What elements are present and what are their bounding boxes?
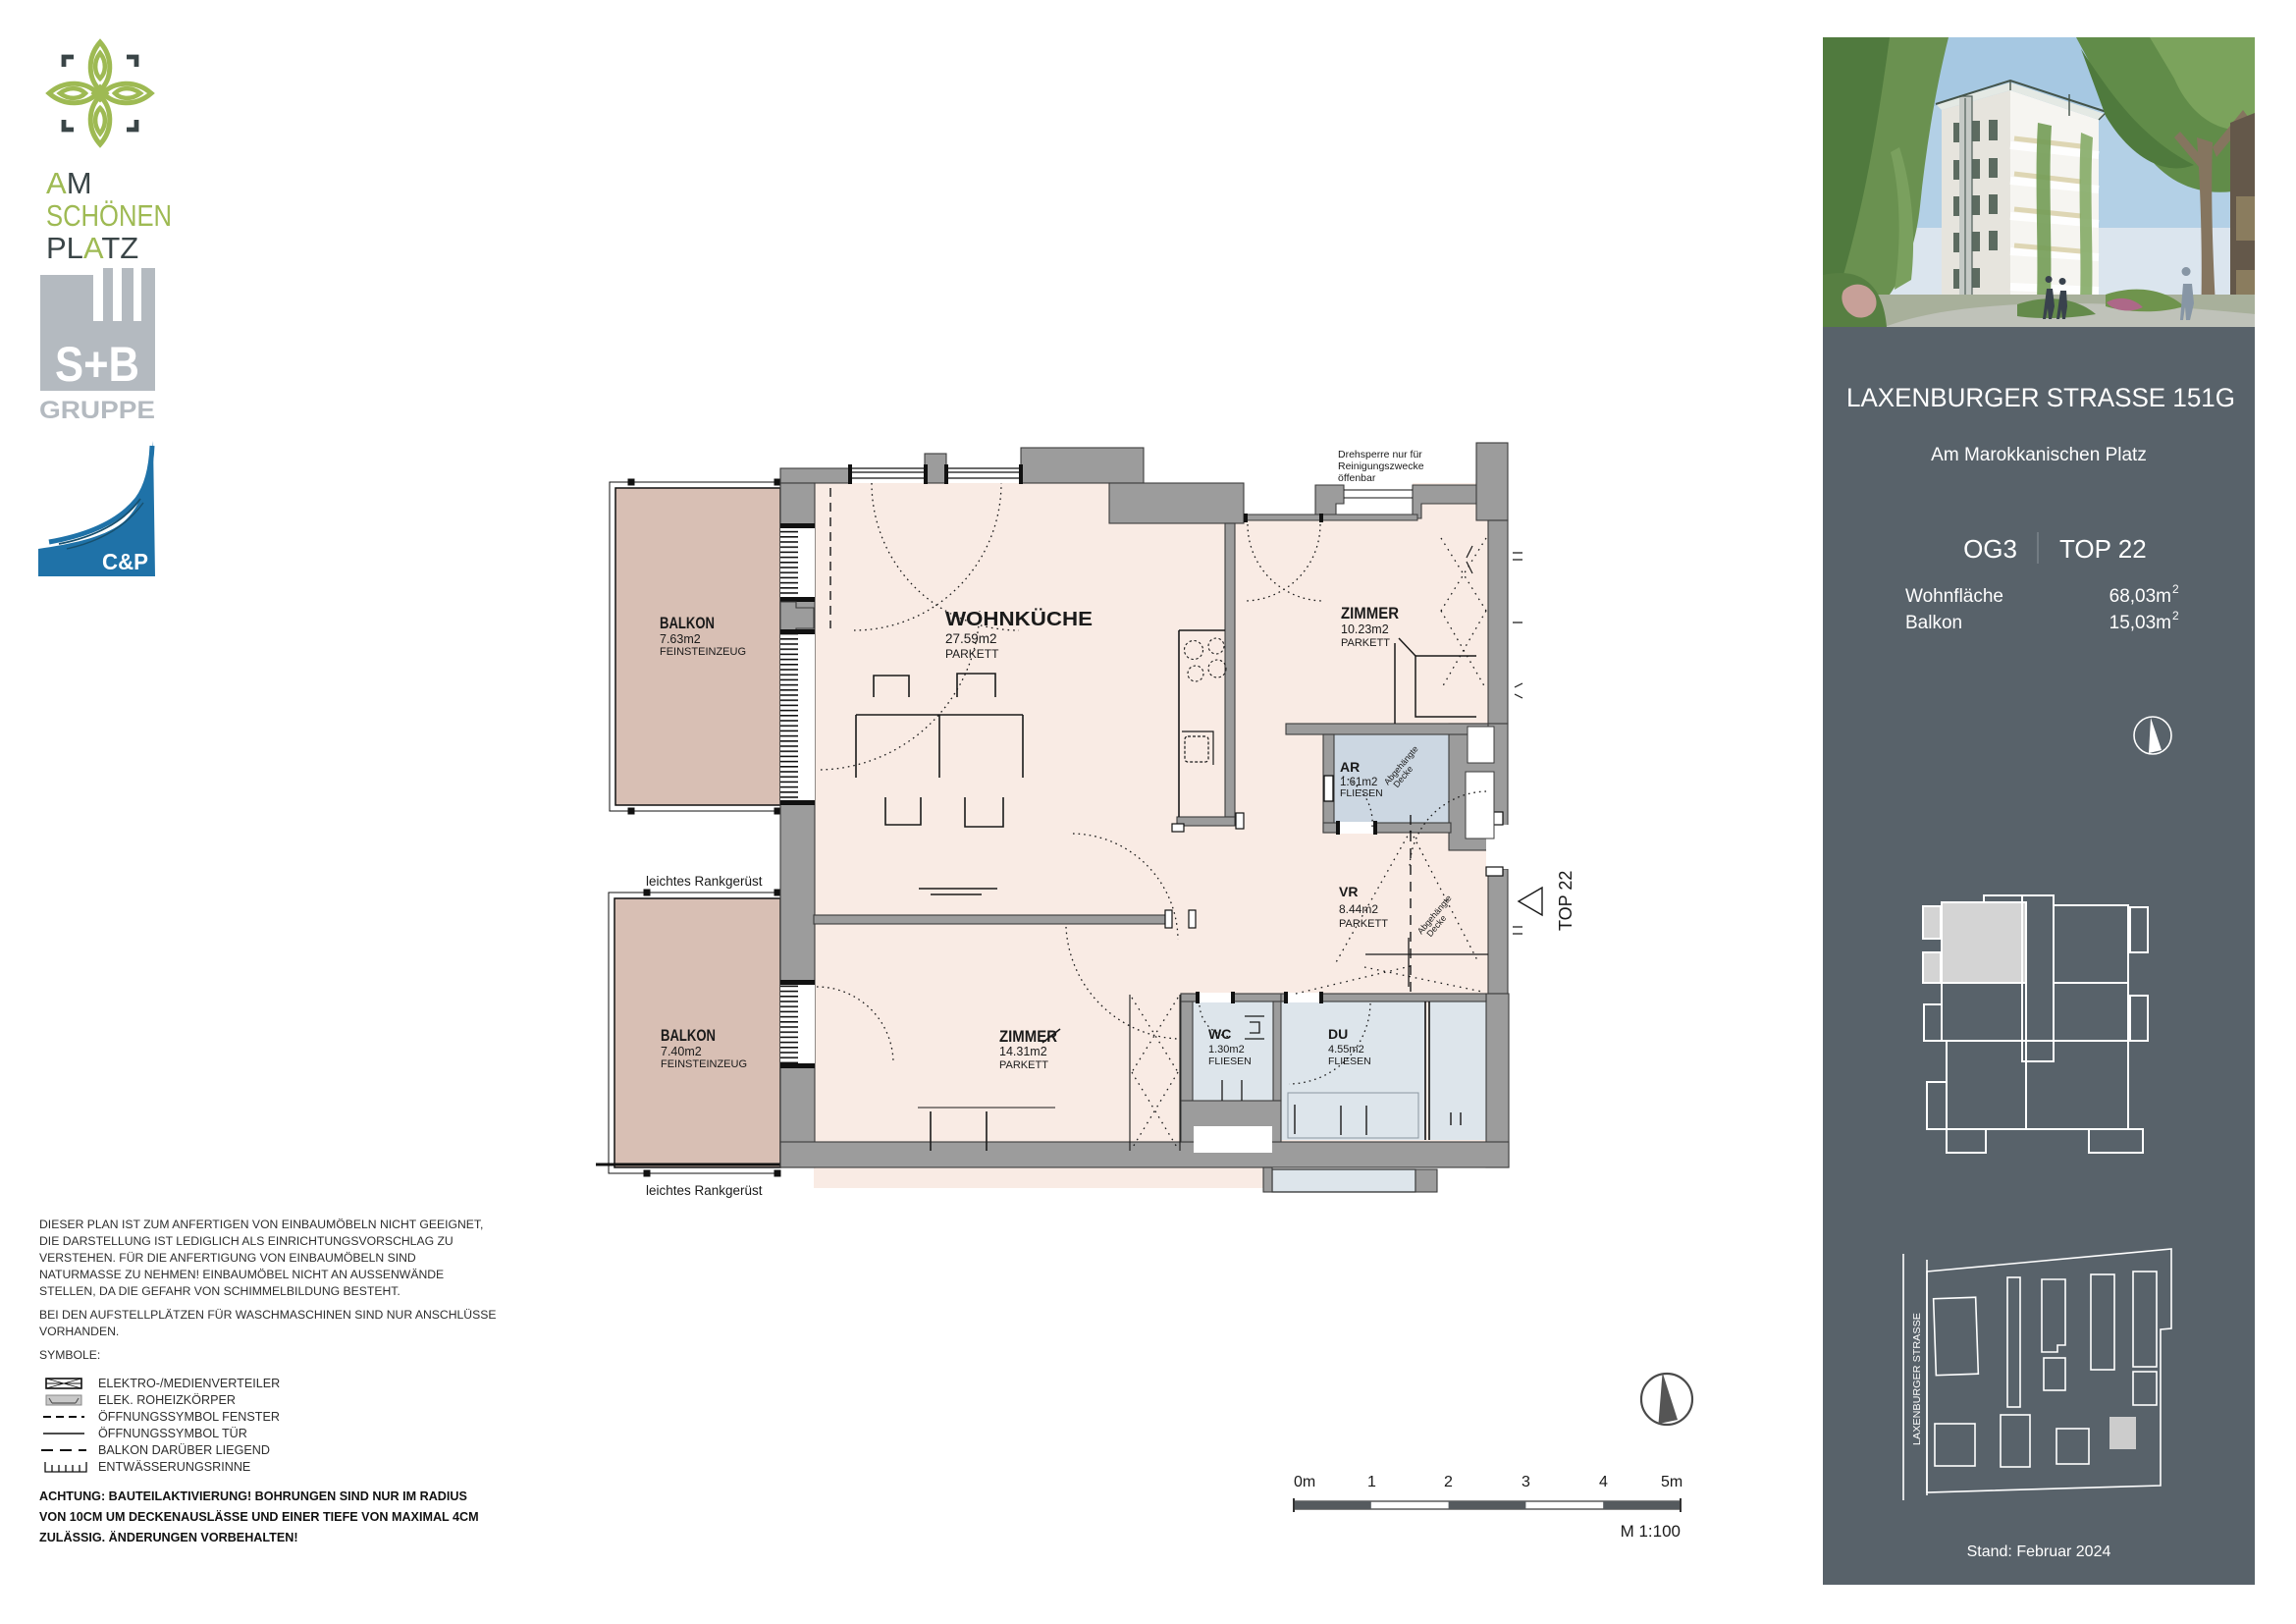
svg-text:Wohnfläche: Wohnfläche	[1905, 586, 2003, 607]
svg-text:ÖFFNUNGSSYMBOL FENSTER: ÖFFNUNGSSYMBOL FENSTER	[98, 1410, 280, 1424]
svg-text:leichtes Rankgerüst: leichtes Rankgerüst	[646, 874, 763, 889]
svg-text:BALKON: BALKON	[661, 1026, 716, 1045]
svg-text:FLIESEN: FLIESEN	[1328, 1056, 1371, 1067]
svg-text:BEI DEN AUFSTELLPLÄTZEN FÜR WA: BEI DEN AUFSTELLPLÄTZEN FÜR WASCHMASCHIN…	[39, 1308, 496, 1322]
svg-text:STELLEN, DA DIE GEFAHR VON SCH: STELLEN, DA DIE GEFAHR VON SCHIMMELBILDU…	[39, 1284, 400, 1298]
svg-text:TOP 22: TOP 22	[1556, 871, 1575, 931]
svg-text:14.31m2: 14.31m2	[999, 1045, 1047, 1058]
svg-text:OG3: OG3	[1963, 534, 2017, 564]
svg-text:4: 4	[1599, 1474, 1608, 1490]
svg-text:ELEK. ROHEIZKÖRPER: ELEK. ROHEIZKÖRPER	[98, 1393, 236, 1407]
svg-text:WOHNKÜCHE: WOHNKÜCHE	[945, 608, 1093, 630]
svg-text:0m: 0m	[1294, 1474, 1315, 1490]
svg-text:PLATZ: PLATZ	[46, 231, 138, 265]
svg-text:1.30m2: 1.30m2	[1208, 1044, 1245, 1056]
svg-text:8.44m2: 8.44m2	[1339, 902, 1378, 916]
svg-text:27.59m2: 27.59m2	[945, 631, 997, 646]
svg-text:PARKETT: PARKETT	[1341, 637, 1390, 649]
svg-text:AR: AR	[1340, 759, 1360, 775]
svg-text:DIESER PLAN IST ZUM ANFERTIGEN: DIESER PLAN IST ZUM ANFERTIGEN VON EINBA…	[39, 1218, 483, 1231]
svg-text:FLIESEN: FLIESEN	[1340, 787, 1383, 799]
svg-text:BALKON: BALKON	[660, 614, 715, 632]
svg-text:öffenbar: öffenbar	[1338, 472, 1376, 484]
svg-text:Balkon: Balkon	[1905, 613, 1962, 633]
svg-text:AM: AM	[46, 166, 92, 200]
svg-text:4.55m2: 4.55m2	[1328, 1044, 1364, 1056]
svg-text:FEINSTEINZEUG: FEINSTEINZEUG	[660, 646, 746, 658]
svg-text:DU: DU	[1328, 1026, 1348, 1042]
svg-text:WC: WC	[1208, 1026, 1231, 1042]
svg-text:leichtes Rankgerüst: leichtes Rankgerüst	[646, 1183, 763, 1198]
svg-text:7.63m2: 7.63m2	[660, 632, 701, 646]
svg-text:TOP 22: TOP 22	[2059, 534, 2147, 564]
svg-text:15,03m: 15,03m	[2109, 613, 2171, 633]
svg-text:PARKETT: PARKETT	[945, 647, 999, 661]
svg-text:C&P: C&P	[102, 549, 148, 574]
svg-text:PARKETT: PARKETT	[1339, 918, 1388, 930]
svg-text:PARKETT: PARKETT	[999, 1059, 1048, 1071]
svg-text:ÖFFNUNGSSYMBOL TÜR: ÖFFNUNGSSYMBOL TÜR	[98, 1427, 247, 1440]
svg-text:SYMBOLE:: SYMBOLE:	[39, 1348, 100, 1362]
svg-text:1: 1	[1367, 1474, 1376, 1490]
svg-text:GRUPPE: GRUPPE	[39, 397, 155, 424]
svg-text:SCHÖNEN: SCHÖNEN	[46, 198, 172, 233]
svg-text:Am Marokkanischen Platz: Am Marokkanischen Platz	[1931, 445, 2147, 465]
svg-text:3: 3	[1522, 1474, 1530, 1490]
svg-text:ENTWÄSSERUNGSRINNE: ENTWÄSSERUNGSRINNE	[98, 1460, 250, 1474]
svg-text:ELEKTRO-/MEDIENVERTEILER: ELEKTRO-/MEDIENVERTEILER	[98, 1377, 280, 1390]
svg-text:BALKON DARÜBER LIEGEND: BALKON DARÜBER LIEGEND	[98, 1443, 270, 1457]
svg-text:2: 2	[1444, 1474, 1453, 1490]
svg-text:68,03m: 68,03m	[2109, 586, 2171, 607]
svg-text:VON 10CM UM DECKENAUSLÄSSE UN: VON 10CM UM DECKENAUSLÄSSE UND EINER TIE…	[39, 1509, 479, 1524]
svg-text:ACHTUNG: BAUTEILAKTIVIERUNG! B: ACHTUNG: BAUTEILAKTIVIERUNG! BOHRUNGEN S…	[39, 1489, 467, 1503]
svg-text:Reinigungszwecke: Reinigungszwecke	[1338, 460, 1424, 472]
svg-text:NATURMASSE ZU NEHMEN! EINBAUMÖ: NATURMASSE ZU NEHMEN! EINBAUMÖBEL NICHT …	[39, 1268, 444, 1281]
svg-text:VORHANDEN.: VORHANDEN.	[39, 1325, 119, 1338]
svg-text:ZIMMER: ZIMMER	[999, 1027, 1057, 1046]
svg-text:Drehsperre nur für: Drehsperre nur für	[1338, 449, 1422, 460]
svg-text:ZIMMER: ZIMMER	[1341, 604, 1399, 623]
svg-text:2: 2	[2172, 609, 2179, 623]
svg-text:FEINSTEINZEUG: FEINSTEINZEUG	[661, 1058, 747, 1070]
svg-text:FLIESEN: FLIESEN	[1208, 1056, 1252, 1067]
svg-text:DIE DARSTELLUNG IST LEDIGLICH: DIE DARSTELLUNG IST LEDIGLICH ALS EINRIC…	[39, 1234, 454, 1248]
svg-text:Stand: Februar 2024: Stand: Februar 2024	[1967, 1543, 2111, 1560]
svg-text:VERSTEHEN. FÜR DIE ANFERTIGUNG: VERSTEHEN. FÜR DIE ANFERTIGUNG VON EINBA…	[39, 1251, 416, 1265]
svg-text:LAXENBURGER STRASSE: LAXENBURGER STRASSE	[1911, 1313, 1923, 1445]
svg-text:ZULÄSSIG. ÄNDERUNGEN VORBEHALT: ZULÄSSIG. ÄNDERUNGEN VORBEHALTEN!	[39, 1530, 298, 1544]
svg-text:M 1:100: M 1:100	[1621, 1522, 1681, 1541]
svg-text:7.40m2: 7.40m2	[661, 1045, 702, 1058]
svg-text:10.23m2: 10.23m2	[1341, 623, 1389, 636]
svg-text:VR: VR	[1339, 884, 1358, 899]
svg-text:S+B: S+B	[55, 337, 139, 392]
svg-text:LAXENBURGER STRASSE 151G: LAXENBURGER STRASSE 151G	[1846, 383, 2235, 412]
svg-text:2: 2	[2172, 582, 2179, 596]
svg-text:5m: 5m	[1661, 1474, 1682, 1490]
